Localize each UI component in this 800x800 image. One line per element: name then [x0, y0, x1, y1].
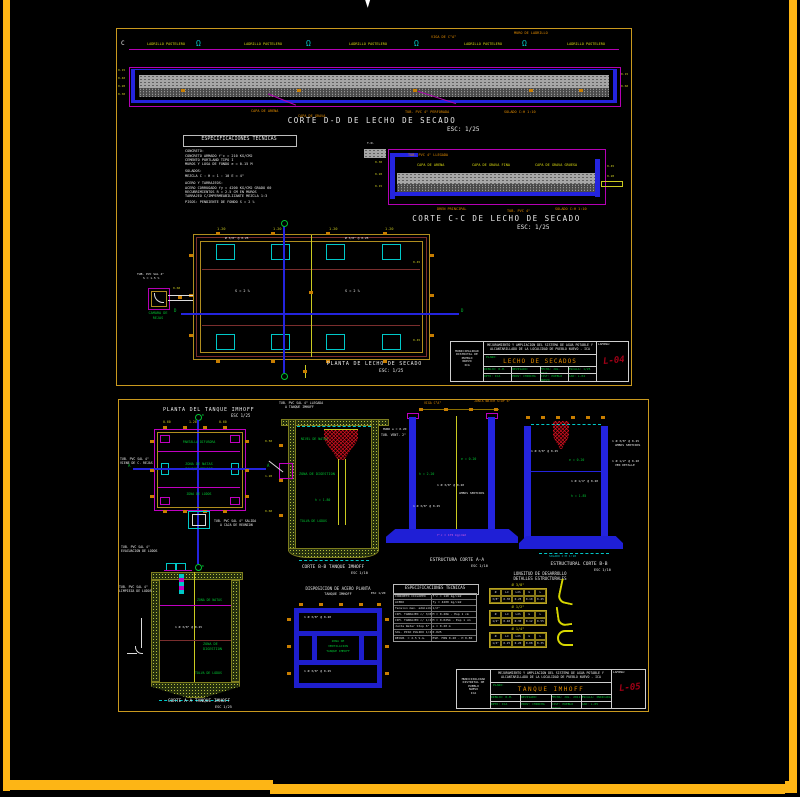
axis-marker-circle [281, 373, 288, 380]
est-aa-white: AMBOS SENTIDOS [459, 492, 484, 495]
dim-tick [309, 291, 313, 294]
dim-tick [383, 232, 387, 235]
est-aa-white: 1 Ø 3/8" @ 0.20 [437, 484, 464, 487]
field: DIBUJO: R.M. [491, 695, 521, 701]
sheet-title: LECHO DE SECADOS [484, 359, 596, 366]
specs1-line: PISOS: PENDIENTE DE FONDO S = 2 % [185, 200, 255, 204]
planta-rebar-label: Ø 3/8" @ 0.25 [225, 237, 248, 240]
ld-cell: 0.30 [512, 618, 523, 625]
stamp-label: LAMINA: [598, 343, 611, 346]
est-bb-right-label: VER DETALLE [615, 464, 635, 467]
titleblock-entity-cell: MUNICIPALIDAD DISTRITAL DE PUEBLO NUEVO … [457, 670, 491, 708]
ld-cell: 0.55 [535, 618, 546, 625]
corte-cc-sand-layer [397, 173, 595, 184]
dim-tick [271, 232, 275, 235]
titleblock-project-cell: MEJORAMIENTO Y AMPLIACION DEL SISTEMA DE… [484, 342, 596, 355]
bb-green-label: TOLVA DE LODOS [300, 520, 327, 524]
spec-value: M = 0.20m - Esp 1 cm [432, 612, 476, 617]
est-aa-left-wall [409, 417, 416, 535]
corte-dd-tag: SOLADO C:H 1:10 [504, 110, 536, 114]
dim-tick [287, 618, 291, 621]
planta-slot [271, 334, 290, 350]
titleblock-1: MUNICIPALIDAD DISTRITAL DE PUEBLO NUEVO … [450, 341, 629, 382]
titleblock-title-cell: PLANO: LECHO DE SECADOS [484, 355, 596, 367]
planta-slot [326, 334, 345, 350]
dim-tick [203, 426, 207, 429]
vent-pipe-icon: Ω [522, 40, 527, 48]
vent-pipe-icon: Ω [196, 40, 201, 48]
dim-tick [326, 232, 330, 235]
est-aa-title: ESTRUCTURA CORTE A-A [407, 558, 507, 563]
ld-cell: Ø [490, 589, 501, 596]
titleblock-entity-cell: MUNICIPALIDAD DISTRITAL DE PUEBLO NUEVO … [451, 342, 484, 381]
planta-axis-horizontal [181, 313, 459, 315]
longitud-label-1: Ø 3/8" [489, 583, 547, 587]
bb-white-label: TUB. VENT. 2" [381, 434, 406, 438]
connector-channel-bottom [168, 300, 193, 301]
bb-dim: 0.60 [265, 510, 272, 513]
field: DIBUJO: R.M. [484, 367, 512, 373]
dim-tick [271, 360, 275, 363]
dim-tick [297, 89, 301, 92]
corte-cc-floor [395, 192, 599, 196]
planta-slot [216, 244, 235, 260]
field: DPTO: ICA [484, 374, 512, 381]
dim-tick [430, 334, 434, 337]
dim-tick [526, 416, 530, 419]
bb-ground-wave [299, 560, 369, 561]
spec-key: ACERO [394, 600, 432, 605]
corte-cc-right-dim: 0.20 [607, 175, 614, 178]
aa-drain-pipe [141, 618, 142, 648]
imhoff-inlet-label2: A TANQUE IMHOFF [285, 406, 314, 410]
dim-tick [287, 645, 291, 648]
table-row: RECUB. = 2.5 S.G.ESP. MIN 0.40 - H 0.80 [394, 636, 476, 641]
entity-line: ICA [457, 692, 490, 695]
axis-marker-d-right: D [461, 309, 463, 314]
aa-scale: ESC 1/25 [215, 705, 232, 709]
est-bb-white: 1 Ø 1/4" @ 0.20 [571, 480, 598, 483]
aa-green: TOLVA DE LODOS [195, 672, 222, 676]
bb-right-wall [371, 419, 379, 551]
ld-cell: 0.45 [535, 596, 546, 603]
ld-cell: 1/2" [490, 618, 501, 625]
ld-cell: 0.35 [535, 640, 546, 647]
field: CAD: L-04 [569, 374, 596, 381]
imhoff-corner-box [160, 497, 170, 505]
aa-top-line [164, 570, 192, 571]
field: DPTO: ICA [491, 702, 521, 708]
field: REVISADO: [512, 367, 540, 373]
cad-screenshot: C Ω Ω Ω Ω LADRILLO PASTELERO LADRILLO PA… [0, 0, 800, 800]
aa-left-wall [151, 580, 160, 682]
drawing-sheet-tanque-imhoff: PLANTA DEL TANQUE IMHOFF ESC 1/25 TUB. P… [118, 399, 649, 712]
est-bb-solado: SOLADO C:H 1:10 [549, 555, 576, 558]
imhoff-top-dim: 0.60 [163, 421, 171, 425]
longitud-table-3: ØLdLdhGL 1/4"0.250.200.080.35 [489, 632, 547, 648]
dim-tick [287, 672, 291, 675]
corte-cc-terrain-stub [364, 149, 386, 158]
rebar-uhook-diagram [557, 630, 573, 646]
dim-tick [150, 440, 154, 443]
ld-cell: G [524, 611, 535, 618]
spec-key: Tension max. admisible [394, 606, 432, 611]
bb-settling-funnel [324, 429, 358, 460]
est-bb-funnel [553, 421, 569, 449]
lamina-stamp: L-04 [597, 355, 632, 368]
specs2-title: ESPECIFICACIONES TECNICAS [393, 586, 477, 591]
corte-cc-tag: TUB. PVC 4" [507, 209, 530, 213]
axis-marker-b-top: B [202, 414, 204, 417]
dim-tick [216, 232, 220, 235]
frame-bottom-bar-seg3 [785, 781, 797, 793]
corte-dd-top-label: LADRILLO PASTELERO [244, 42, 282, 46]
dim-tick [444, 408, 448, 411]
dim-tick [163, 426, 167, 429]
bb-scale: ESC 1/10 [351, 571, 368, 575]
corte-dd-right-dim: 0.60 [621, 85, 628, 88]
ld-cell: Ld [501, 611, 512, 618]
entity-line: ICA [451, 364, 483, 367]
dim-tick [163, 510, 167, 513]
est-aa-slab-label: f'c = 175 kg/cm2 [437, 534, 466, 537]
corte-dd-tag: CAPA DE ARENA [251, 109, 278, 113]
dim-tick [586, 416, 590, 419]
bb-title: CORTE B-B TANQUE IMHOFF [277, 565, 389, 570]
dim-tick [339, 603, 343, 606]
imhoff-corner-box [230, 497, 240, 505]
dim-tick [183, 426, 187, 429]
ld-cell: G [524, 589, 535, 596]
longitud-label-2: Ø 1/2" [489, 605, 547, 609]
field: CAD: L-05 [582, 702, 611, 708]
dim-tick [419, 408, 423, 411]
bb-dim: 0.50 [265, 440, 272, 443]
corte-cc-left-dim: 0.20 [375, 173, 382, 176]
est-aa-right-wall [488, 417, 495, 535]
est-aa-scale: ESC 1/10 [471, 564, 488, 568]
titleblock-2: MUNICIPALIDAD DISTRITAL DE PUEBLO NUEVO … [456, 669, 646, 709]
specs1-line: SOLADOS: [185, 169, 202, 173]
bb-green-label: NIVEL DE NATAS [301, 438, 328, 442]
spec-key: RECUB. = 2.5 S.G. [394, 636, 432, 641]
dim-tick [579, 89, 583, 92]
titleblock-fields-row1: DIBUJO: R.M. REVISADO: FECHA: JUL. 2011 … [484, 367, 596, 374]
dim-tick [150, 495, 154, 498]
section-marker-c: C [121, 41, 125, 48]
imhoff-drain-label2: EVACUACION DE LODOS [121, 550, 157, 554]
bb-center-shaft [338, 459, 346, 525]
specs1-line: ACERO Y TARRAJEOS: [185, 181, 223, 185]
specs2-table: CONCRETO CICLOPEOf'c = 140 kg/cm2 ACEROf… [393, 593, 477, 642]
longitud-table-2: ØLdLdhGL 1/2"0.400.300.120.55 [489, 610, 547, 626]
corte-dd-leader-label: MURO DE LADRILLO [514, 31, 548, 35]
vent-pipe-icon: Ω [306, 40, 311, 48]
aa-top-slab [151, 572, 243, 580]
dim-tick [279, 479, 283, 482]
field: REVISADO: [521, 695, 551, 701]
aa-interior-line [160, 605, 231, 606]
planta-slot [271, 244, 290, 260]
titleblock-title-cell: PLANO: TANQUE IMHOFF [491, 683, 611, 695]
imhoff-upper-label: PANTALLA DIFUSORA [167, 441, 231, 445]
axis-marker-a-right: A [267, 464, 269, 469]
corte-cc-left-dim: 0.15 [375, 185, 382, 188]
acero-top-rebar: 1 Ø 3/8" @ 0.20 [304, 616, 331, 619]
project-line2: ALCANTARILLADO DE LA LOCALIDAD DE PUEBLO… [484, 348, 596, 352]
dim-tick [359, 603, 363, 606]
est-bb-scale: ESC 1/10 [594, 568, 611, 572]
est-bb-water-line [531, 424, 601, 425]
ld-cell: Ld [501, 633, 512, 640]
planta-slot [326, 244, 345, 260]
longitud-table-1: ØLdLdhGL 3/8"0.300.250.100.45 [489, 588, 547, 604]
ld-cell: Ldh [512, 633, 523, 640]
dim-tick [430, 254, 434, 257]
corte-cc-tag: SOLADO C:H 1:10 [555, 207, 587, 211]
dim-tick [541, 416, 545, 419]
planta-slope-label: S = 2 % [345, 289, 360, 293]
field: DIST: PUEBLO NUEVO [552, 702, 582, 708]
corte-dd-top-chord [129, 49, 619, 50]
planta-side-dim: 0.45 [413, 339, 420, 342]
axis-marker-circle [195, 564, 202, 571]
acero-center-line3: TANQUE IMHOFF [319, 650, 357, 653]
field: ESCALA: INDICADA [582, 695, 611, 701]
dim-tick [385, 672, 389, 675]
planta-imhoff-scale: ESC 1/25 [231, 414, 250, 419]
acero-center-line2: VENTILACION [319, 645, 357, 648]
imhoff-center-line1: ZONA DE NATAS [167, 462, 231, 466]
dim-tick [571, 416, 575, 419]
corte-dd-gravel-layer [139, 88, 609, 97]
stamp-label: LAMINA: [613, 671, 626, 674]
dim-tick [181, 89, 185, 92]
ld-cell: 0.30 [501, 596, 512, 603]
ld-cell: Ø [490, 611, 501, 618]
dim-tick [494, 408, 498, 411]
dim-tick [319, 603, 323, 606]
dim-tick [150, 469, 154, 472]
project-line2: ALCANTARILLADO DE LA LOCALIDAD DE PUEBLO… [491, 676, 611, 680]
bb-water-line [297, 426, 371, 427]
planta-rebar-label: Ø 3/8" @ 0.25 [345, 237, 368, 240]
dim-tick [303, 370, 307, 373]
bb-dim: 1.20 [265, 475, 272, 478]
specs1-line: MEZCLA C : H = 1 : 10 E = 4" [185, 174, 244, 178]
frame-right-bar [789, 0, 797, 793]
planta-slope-label: S = 2 % [235, 289, 250, 293]
planta-axis-vertical [283, 226, 285, 373]
est-bb-green: h = 1.85 [571, 495, 586, 499]
corte-cc-scale: ESC: 1/25 [517, 225, 550, 232]
dim-tick [469, 408, 473, 411]
ld-cell: L [535, 589, 546, 596]
spec-value: fy = 4200 kg/cm2 [432, 600, 476, 605]
titleblock-stamp-cell: LAMINA: L-04 [596, 342, 630, 381]
corte-cc-top-label: CAPA DE GRAVA FINA [472, 163, 510, 167]
dim-tick [189, 254, 193, 257]
specs1-title: ESPECIFICACIONES TECNICAS [183, 137, 295, 143]
planta-top-dim: 1.20 [385, 227, 393, 231]
est-bb-right-wall [601, 426, 608, 538]
spec-value: ESP. MIN 0.40 - H 0.80 [432, 636, 476, 641]
corte-dd-top-label: LADRILLO PASTELERO [147, 42, 185, 46]
ld-cell: Ld [501, 589, 512, 596]
aa-baffle-segment [179, 590, 184, 594]
dim-tick [299, 603, 303, 606]
spec-value: 1/2" [432, 606, 476, 611]
aa-green: ZONA DE [203, 642, 218, 646]
titleblock-stamp-cell: LAMINA: L-05 [611, 670, 647, 708]
corte-dd-left-dim: 0.15 [118, 69, 125, 72]
dim-tick [223, 426, 227, 429]
est-aa-top-tag: VIGA C°A° [424, 402, 441, 406]
mouse-cursor [365, 0, 375, 8]
imhoff-top-dim: 0.60 [219, 421, 227, 425]
ld-cell: 1/4" [490, 640, 501, 647]
spec-value: f'c = 140 kg/cm2 [432, 594, 476, 599]
imhoff-left-label2: VIENE DE C. REJAS [120, 462, 153, 466]
ld-cell: 0.20 [512, 640, 523, 647]
spec-value: 0.025 [432, 630, 476, 635]
ld-cell: 0.12 [524, 618, 535, 625]
planta-title: PLANTA DE LECHO DE SECADO [317, 362, 432, 368]
ld-cell: L [535, 633, 546, 640]
imhoff-outlet-box-inner [192, 514, 206, 526]
ld-cell: 0.25 [512, 596, 523, 603]
corte-dd-sand-layer [139, 75, 609, 88]
longitud-title2: DETALLES ESTRUCTURALES [484, 577, 596, 582]
ld-cell: 0.25 [501, 640, 512, 647]
dim-tick [377, 603, 381, 606]
frame-bottom-bar-seg1 [3, 780, 273, 790]
dim-tick [245, 495, 249, 498]
est-bb-mid-line [531, 471, 601, 472]
dim-tick [385, 618, 389, 621]
est-bb-right-label: AMBOS SENTIDOS [615, 444, 640, 447]
spec-value: e = 0.20 m [432, 624, 476, 629]
camara-label-line1: CAMARA DE [139, 311, 177, 315]
sheet-title: TANQUE IMHOFF [491, 687, 611, 694]
specs1-line: CONCRETO: [185, 149, 204, 153]
titleblock-fields-row1: DIBUJO: R.M. REVISADO: FECHA: JUL. 2011 … [491, 695, 611, 702]
corte-dd-leader-label: VIGA DE C°A° [431, 35, 456, 39]
imhoff-plan-divider [158, 451, 240, 452]
planta-top-dim: 1.20 [329, 227, 337, 231]
dim-tick [245, 440, 249, 443]
planta-top-dim: 1.20 [217, 227, 225, 231]
spec-key: CIM. TARRAJEO c/ 1/2" [394, 618, 432, 623]
camara-label-line2: REJAS [139, 316, 177, 320]
ld-cell: 3/8" [490, 596, 501, 603]
spec-key: SOL. PISO PULIDO 1/2" [394, 630, 432, 635]
dim-tick [279, 514, 283, 517]
frame-left-bar [3, 0, 10, 791]
acero-bar-v [312, 636, 317, 660]
dim-tick [189, 334, 193, 337]
dim-tick [216, 360, 220, 363]
dim-tick [245, 469, 249, 472]
bb-left-wall [288, 419, 296, 551]
ld-cell: Ldh [512, 589, 523, 596]
spec-key: CIM. TARRAJEO c/ 3/8" [394, 612, 432, 617]
field: ESCALA: 1/25 [569, 367, 596, 373]
ld-cell: Ldh [512, 611, 523, 618]
ld-cell: 0.10 [524, 596, 535, 603]
est-aa-green: h = 2.20 [419, 473, 434, 477]
specs1-line: MUROS Y LOSA DE FONDO e = 0.15 M [185, 162, 252, 166]
imhoff-plan-divider [158, 487, 240, 488]
lamina-stamp: L-05 [612, 681, 649, 694]
est-aa-green: e = 0.20 [461, 458, 476, 462]
planta-scale: ESC: 1/25 [379, 369, 403, 374]
bb-floor [288, 548, 379, 558]
corte-cc-tag: DREN PRINCIPAL [437, 207, 467, 211]
corte-dd-left-dim: 0.40 [118, 77, 125, 80]
dim-tick [430, 294, 434, 297]
vent-pipe-icon: Ω [414, 40, 419, 48]
corte-cc-title: CORTE C-C DE LECHO DE SECADO [389, 215, 604, 224]
dim-tick [223, 510, 227, 513]
axis-marker-b-bottom: B [202, 565, 204, 568]
est-bb-title: ESTRUCTURAL CORTE B-B [529, 562, 629, 567]
spec-key: Junta Water Stop 6" [394, 624, 432, 629]
drawing-sheet-lecho-de-secado: C Ω Ω Ω Ω LADRILLO PASTELERO LADRILLO PA… [116, 28, 632, 386]
acero-bottom-rebar: 1 Ø 3/8" @ 0.25 [304, 670, 331, 673]
aa-green: DIGESTION [203, 647, 222, 651]
corte-dd-top-label: LADRILLO PASTELERO [349, 42, 387, 46]
corte-cc-gravel-layer [397, 184, 595, 192]
imhoff-corner-box [230, 435, 240, 443]
corte-dd-right-dim: 0.15 [621, 73, 628, 76]
corte-cc-left-dim: 0.30 [375, 161, 382, 164]
field: FECHA: JUL. 2011 [552, 695, 582, 701]
field: PROV: CHINCHA [521, 702, 551, 708]
planta-divider-wall [311, 235, 312, 357]
corte-dd-top-label: LADRILLO PASTELERO [464, 42, 502, 46]
dim-tick [385, 645, 389, 648]
acero-bar-h [299, 660, 377, 665]
aa-title: CORTE A-A TANQUE IMHOFF [147, 699, 251, 704]
rebar-hook-diagram [556, 605, 573, 627]
aa-right-wall [231, 580, 240, 682]
est-bb-base-slab [519, 536, 623, 549]
dim-tick [279, 444, 283, 447]
acero-bar-h [299, 631, 377, 636]
planta-side-dim: 0.45 [413, 261, 420, 264]
spec-value: M = 0.025m - Esp 1 cm [432, 618, 476, 623]
ld-cell: Ø [490, 633, 501, 640]
est-aa-white: 1 Ø 3/8" @ 0.25 [413, 505, 440, 508]
bb-green-label: h = 1.80 [315, 499, 330, 503]
imhoff-outlet-label2: A CAJA DE REUNION [220, 524, 253, 528]
est-bb-left-wall [524, 426, 531, 538]
field: PROV: CHINCHA [512, 374, 540, 381]
field: DIST: PUEBLO NUEVO [541, 374, 569, 381]
titleblock-project-cell: MEJORAMIENTO Y AMPLIACION DEL SISTEMA DE… [491, 670, 611, 683]
imhoff-lower-label: ZONA DE LODOS [167, 493, 231, 497]
aa-green: ZONA DE NATAS [197, 599, 222, 603]
corte-cc-inlet-label: TUB. PVC 4" LLEGADA [408, 153, 448, 157]
bb-green-label: ZONA DE DIGESTION [299, 472, 335, 476]
field: FECHA: JUL. 2011 [541, 367, 569, 373]
corte-dd-tag: TUB. PVC 4" PERFORADA [405, 110, 449, 114]
ld-cell: G [524, 633, 535, 640]
corte-dd-scale: ESC: 1/25 [447, 127, 480, 134]
aa-interior-line2 [160, 640, 231, 641]
aa-pipe-label2: LIMPIEZA DE LODOS [119, 590, 152, 594]
